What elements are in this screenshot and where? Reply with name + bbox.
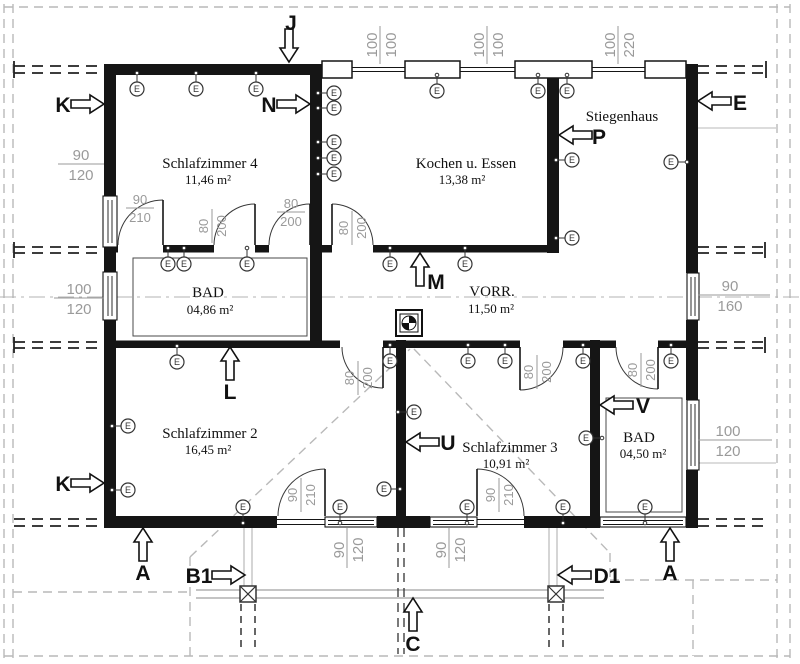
dim-text: 100 bbox=[715, 423, 740, 440]
outlet-letter: E bbox=[240, 502, 246, 512]
section-letter: L bbox=[224, 381, 237, 404]
outlet-letter: E bbox=[174, 357, 180, 367]
section-letter: E bbox=[733, 92, 747, 115]
section-letter: A bbox=[135, 562, 150, 585]
room-area: 04,50 m² bbox=[620, 446, 667, 461]
room-name: Schlafzimmer 2 bbox=[162, 426, 257, 442]
door-dim: 80 200 bbox=[521, 355, 554, 389]
section-mark-d1: D1 bbox=[558, 565, 621, 588]
outlet-letter: E bbox=[560, 502, 566, 512]
outlet-letter: E bbox=[331, 88, 337, 98]
section-mark-l: L bbox=[221, 347, 239, 404]
room-name: Schlafzimmer 4 bbox=[162, 156, 258, 172]
room-name: BAD bbox=[192, 285, 224, 301]
section-arrow-icon bbox=[661, 528, 679, 561]
window bbox=[322, 61, 352, 78]
outlet-letter: E bbox=[668, 157, 674, 167]
outlet-letter: E bbox=[569, 233, 575, 243]
section-letter: B1 bbox=[186, 565, 213, 588]
section-mark-n: N bbox=[261, 94, 310, 117]
svg-text:80: 80 bbox=[521, 365, 536, 379]
outlet-letter: E bbox=[331, 169, 337, 179]
outlet-letter: E bbox=[411, 407, 417, 417]
outlet-letter: E bbox=[381, 484, 387, 494]
outlet-letter: E bbox=[253, 84, 259, 94]
outlet-letter: E bbox=[165, 259, 171, 269]
wall-segment bbox=[104, 64, 116, 196]
section-letter: K bbox=[55, 94, 70, 117]
floor-plan-page: 90 120 100 120 90 160 100 120 100 100 10… bbox=[0, 0, 800, 664]
section-mark-m: M bbox=[411, 253, 445, 294]
svg-text:200: 200 bbox=[214, 215, 229, 237]
outlet-letter: E bbox=[331, 153, 337, 163]
section-letter: N bbox=[261, 94, 276, 117]
room-area: 10,91 m² bbox=[483, 456, 530, 471]
section-mark-b1: B1 bbox=[186, 565, 245, 588]
post bbox=[548, 586, 564, 602]
section-letter: A bbox=[662, 562, 677, 585]
outlet-letter: E bbox=[583, 433, 589, 443]
svg-text:210: 210 bbox=[303, 484, 318, 506]
wall-segment bbox=[383, 341, 520, 349]
wall-segment bbox=[322, 245, 332, 253]
section-arrow-icon bbox=[134, 528, 152, 561]
section-letter: J bbox=[285, 12, 297, 35]
wall-segment bbox=[104, 516, 277, 528]
svg-text:200: 200 bbox=[360, 367, 375, 389]
outlet-letter: E bbox=[125, 485, 131, 495]
room-area: 04,86 m² bbox=[187, 302, 234, 317]
outlet-letter: E bbox=[462, 259, 468, 269]
outlet-letter: E bbox=[580, 356, 586, 366]
svg-text:90: 90 bbox=[285, 488, 300, 502]
outlet-symbol: E bbox=[240, 246, 254, 271]
section-letter: P bbox=[592, 126, 606, 149]
wall-segment bbox=[104, 320, 116, 528]
room-area: 11,50 m² bbox=[468, 301, 514, 316]
wall-segment bbox=[310, 64, 322, 347]
section-letter: K bbox=[55, 473, 70, 496]
section-arrow-icon bbox=[698, 92, 731, 110]
section-mark-k: K bbox=[55, 94, 104, 117]
svg-text:80: 80 bbox=[342, 371, 357, 385]
section-letter: D1 bbox=[594, 565, 621, 588]
section-mark-u: U bbox=[406, 432, 456, 455]
window bbox=[645, 61, 686, 78]
dim-text: 120 bbox=[350, 537, 367, 562]
door-dim: 80 200 bbox=[277, 196, 305, 229]
window bbox=[103, 272, 117, 320]
svg-text:200: 200 bbox=[280, 214, 302, 229]
outlet-letter: E bbox=[502, 356, 508, 366]
dim-text: 90 bbox=[73, 147, 90, 164]
outlet-letter: E bbox=[434, 86, 440, 96]
section-mark-j: J bbox=[280, 12, 298, 62]
svg-text:80: 80 bbox=[625, 363, 640, 377]
svg-text:210: 210 bbox=[129, 210, 151, 225]
dim-text: 100 bbox=[383, 32, 400, 57]
svg-text:90: 90 bbox=[133, 192, 147, 207]
wall-segment bbox=[163, 245, 214, 253]
outlet-letter: E bbox=[181, 259, 187, 269]
outlet-symbol: E bbox=[664, 155, 689, 169]
window bbox=[687, 273, 699, 320]
section-arrow-icon bbox=[221, 347, 239, 380]
outlet-letter: E bbox=[569, 155, 575, 165]
section-arrow-icon bbox=[406, 433, 439, 451]
wall-segment bbox=[373, 245, 547, 253]
room-name: Kochen u. Essen bbox=[416, 156, 517, 172]
section-mark-p: P bbox=[559, 126, 606, 149]
door-dim: 80 200 bbox=[336, 211, 369, 245]
outlet-letter: E bbox=[387, 259, 393, 269]
outlet-letter: E bbox=[464, 502, 470, 512]
dim-text: 90 bbox=[331, 542, 348, 559]
dim-text: 120 bbox=[66, 301, 91, 318]
post bbox=[240, 586, 256, 602]
room-name: Schlafzimmer 3 bbox=[462, 440, 557, 456]
dim-text: 120 bbox=[715, 443, 740, 460]
wall-segment bbox=[686, 516, 698, 528]
section-arrow-icon bbox=[71, 95, 104, 113]
section-letter: U bbox=[440, 432, 455, 455]
section-arrow-icon bbox=[277, 95, 310, 113]
room-area: 13,38 m² bbox=[439, 172, 486, 187]
window bbox=[515, 61, 592, 78]
wall-segment bbox=[396, 340, 406, 528]
svg-text:80: 80 bbox=[196, 219, 211, 233]
section-letter: C bbox=[405, 633, 420, 656]
wall-segment bbox=[686, 320, 698, 400]
window bbox=[325, 517, 377, 527]
outlet-letter: E bbox=[668, 356, 674, 366]
section-arrow-icon bbox=[404, 598, 422, 631]
outlet-letter: E bbox=[387, 356, 393, 366]
outlet-letter: E bbox=[244, 259, 250, 269]
section-mark-e: E bbox=[698, 92, 747, 115]
dim-text: 120 bbox=[452, 537, 469, 562]
svg-text:80: 80 bbox=[284, 196, 298, 211]
wall-segment bbox=[104, 341, 340, 349]
wall-segment bbox=[686, 64, 698, 273]
room-name: VORR. bbox=[469, 284, 514, 300]
wall-segment bbox=[255, 245, 269, 253]
dim-text: 100 bbox=[602, 32, 619, 57]
outlet-letter: E bbox=[331, 137, 337, 147]
dim-text: 90 bbox=[433, 542, 450, 559]
svg-text:200: 200 bbox=[539, 361, 554, 383]
svg-text:80: 80 bbox=[336, 221, 351, 235]
section-mark-c: C bbox=[404, 598, 422, 656]
dim-text: 220 bbox=[621, 32, 638, 57]
outlet-letter: E bbox=[193, 84, 199, 94]
dim-text: 120 bbox=[68, 167, 93, 184]
outlet-letter: E bbox=[535, 86, 541, 96]
room-area: 16,45 m² bbox=[185, 442, 232, 457]
window bbox=[687, 400, 699, 470]
outlet-letter: E bbox=[331, 103, 337, 113]
section-letter: V bbox=[636, 395, 650, 418]
door-dim: 90 210 bbox=[285, 478, 318, 512]
door-dim: 80 200 bbox=[625, 353, 658, 387]
section-arrow-icon bbox=[559, 126, 592, 144]
section-mark-a: A bbox=[134, 528, 152, 585]
window bbox=[103, 196, 117, 247]
section-arrow-icon bbox=[212, 566, 245, 584]
outlet-letter: E bbox=[337, 502, 343, 512]
wall-segment bbox=[563, 341, 616, 349]
outlet-letter: E bbox=[125, 421, 131, 431]
dim-text: 90 bbox=[722, 278, 739, 295]
door-dim: 80 200 bbox=[196, 209, 229, 243]
section-mark-a: A bbox=[661, 528, 679, 585]
svg-text:200: 200 bbox=[354, 217, 369, 239]
room-name: BAD bbox=[623, 430, 655, 446]
door-dim: 90 210 bbox=[126, 192, 154, 225]
window bbox=[405, 61, 460, 78]
floor-plan-drawing: 90 120 100 120 90 160 100 120 100 100 10… bbox=[0, 0, 800, 664]
section-letter: M bbox=[427, 271, 445, 294]
dim-text: 100 bbox=[364, 32, 381, 57]
dim-text: 100 bbox=[66, 281, 91, 298]
north-symbol-icon bbox=[396, 310, 422, 336]
outlet-symbol: E bbox=[579, 431, 604, 445]
room-name: Stiegenhaus bbox=[586, 109, 659, 125]
outlet-letter: E bbox=[134, 84, 140, 94]
outlet-letter: E bbox=[564, 86, 570, 96]
dim-text: 160 bbox=[717, 298, 742, 315]
terrace bbox=[196, 528, 604, 654]
svg-text:210: 210 bbox=[501, 484, 516, 506]
outlet-letter: E bbox=[465, 356, 471, 366]
section-arrow-icon bbox=[71, 474, 104, 492]
dim-text: 100 bbox=[490, 32, 507, 57]
window bbox=[430, 517, 477, 527]
svg-text:200: 200 bbox=[643, 359, 658, 381]
section-mark-k: K bbox=[55, 473, 104, 496]
dim-text: 100 bbox=[471, 32, 488, 57]
svg-text:90: 90 bbox=[483, 488, 498, 502]
section-arrow-icon bbox=[558, 566, 591, 584]
room-area: 11,46 m² bbox=[185, 172, 231, 187]
section-arrow-icon bbox=[600, 396, 633, 414]
outlet-letter: E bbox=[642, 502, 648, 512]
wall-segment bbox=[590, 340, 600, 516]
